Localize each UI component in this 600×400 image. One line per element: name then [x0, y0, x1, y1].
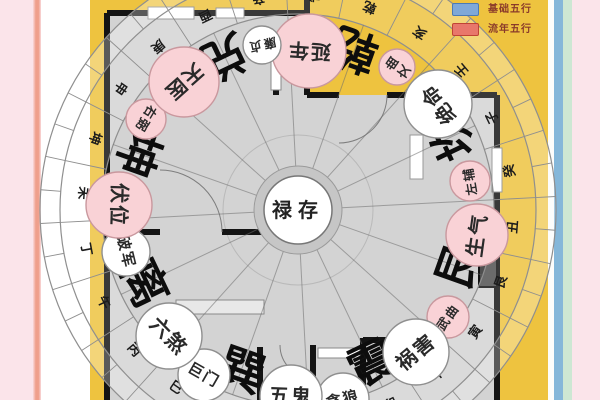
legend-item-base: 基础五行 — [452, 3, 532, 16]
star-circle-6: 祸害 — [383, 319, 449, 385]
star-circle-0: 延年 — [272, 14, 346, 88]
base-elements-swatch-icon — [452, 3, 479, 16]
feng-shui-app-view: { "legend": { "items": [ {"label": "基础五行… — [0, 0, 600, 400]
star-circle-14: 天医 — [149, 47, 219, 117]
radiator — [410, 135, 423, 179]
svg-text:五鬼: 五鬼 — [269, 383, 314, 400]
legend-label-base: 基础五行 — [488, 5, 532, 15]
luopan-compass-floorplan: 子癸丑艮寅甲卯乙辰巽巳丙午丁未坤申庚酉辛戌乾亥壬坎艮震巽离坤兑乾延年文曲绝命左辅… — [0, 0, 600, 400]
svg-text:伏位: 伏位 — [106, 183, 131, 228]
star-circle-1: 文曲 — [379, 49, 415, 85]
mountain-char: 丁 — [77, 242, 94, 258]
star-circle-3: 左辅 — [450, 161, 490, 201]
svg-text:延年: 延年 — [286, 38, 333, 65]
star-circle-15: 廉贞 — [243, 26, 281, 64]
legend-label-annual: 流年五行 — [488, 25, 532, 35]
center-star-label: 禄存 — [272, 198, 324, 222]
star-circle-2: 绝命 — [404, 70, 472, 138]
star-circle-12: 伏位 — [86, 172, 152, 238]
annual-elements-swatch-icon — [452, 23, 479, 36]
legend-item-annual: 流年五行 — [452, 23, 532, 36]
five-elements-legend: 基础五行 流年五行 — [452, 3, 532, 36]
star-circle-4: 生气 — [446, 204, 508, 266]
center-star: 禄存 — [254, 166, 342, 254]
star-circle-10: 六煞 — [136, 303, 202, 369]
